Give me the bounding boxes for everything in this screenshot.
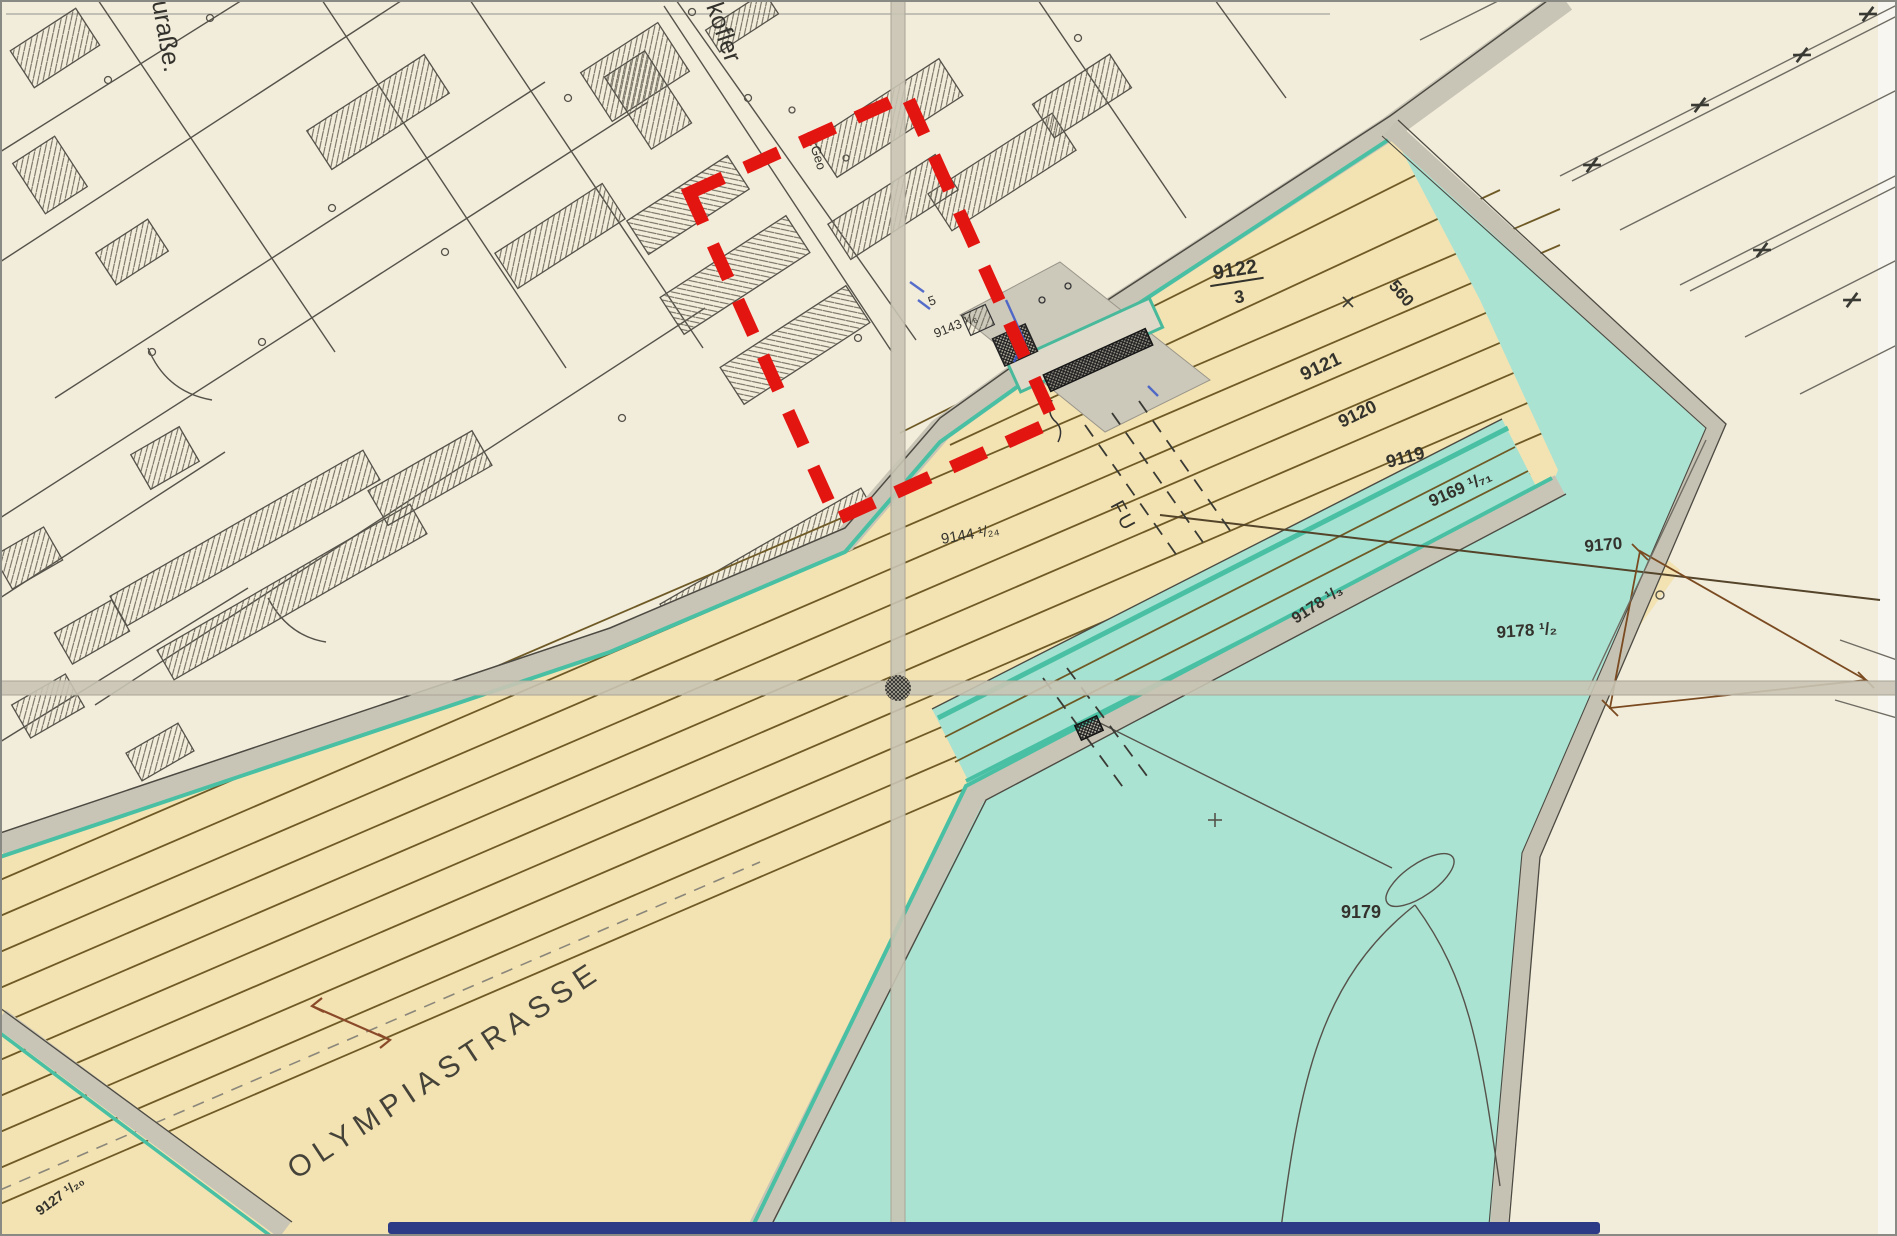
scan-right-margin (1878, 0, 1897, 1236)
cadastral-map: uraße. kofler St.Geo 9122 3 560 9121 912… (0, 0, 1897, 1236)
label-parcel-9170: 9170 (1584, 534, 1623, 556)
scan-edge-strip (388, 1222, 1600, 1234)
scanned-map-page: uraße. kofler St.Geo 9122 3 560 9121 912… (0, 0, 1897, 1236)
fold-intersection-mark (885, 675, 911, 701)
fold-line-horizontal (0, 681, 1897, 695)
label-parcel-9179: 9179 (1341, 902, 1381, 922)
fold-line-vertical (891, 0, 905, 1236)
